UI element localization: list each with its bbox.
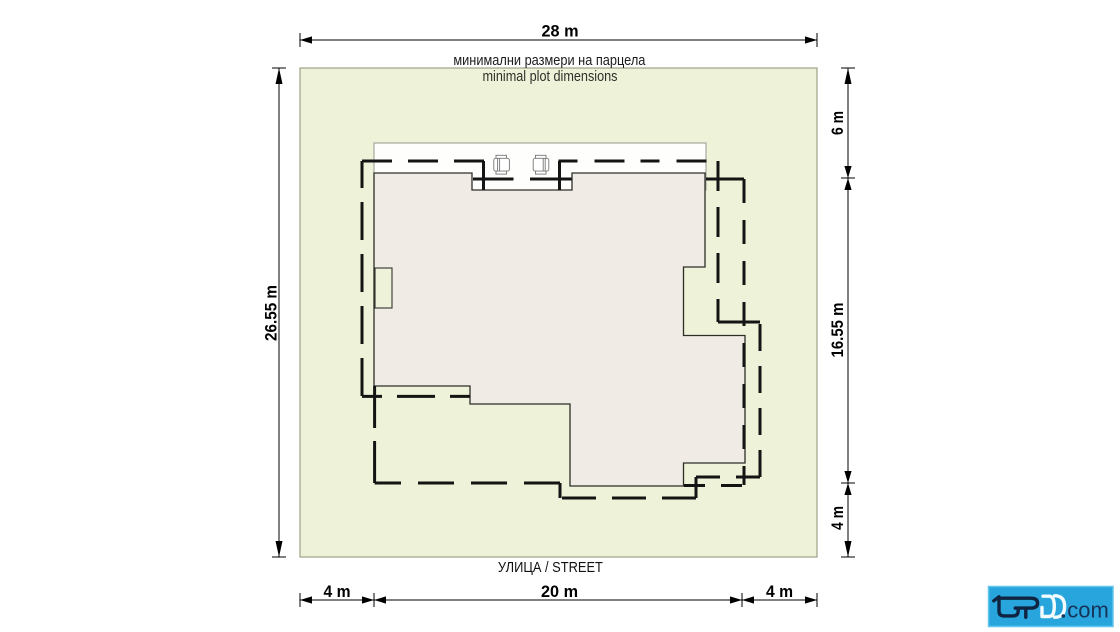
svg-text:28 m: 28 m bbox=[542, 22, 579, 41]
svg-text:минимални размери на парцела: минимални размери на парцела bbox=[453, 53, 646, 69]
svg-text:4 m: 4 m bbox=[324, 582, 351, 601]
svg-text:16.55 m: 16.55 m bbox=[828, 303, 847, 358]
svg-text:4 m: 4 m bbox=[766, 582, 793, 601]
svg-text:4 m: 4 m bbox=[828, 506, 847, 530]
svg-text:20 m: 20 m bbox=[541, 582, 578, 601]
svg-text:6 m: 6 m bbox=[828, 111, 847, 135]
svg-text:com: com bbox=[1067, 598, 1109, 623]
svg-text:26.55 m: 26.55 m bbox=[262, 285, 281, 341]
svg-text:minimal plot dimensions: minimal plot dimensions bbox=[483, 69, 618, 85]
svg-text:УЛИЦА / STREET: УЛИЦА / STREET bbox=[498, 560, 603, 576]
